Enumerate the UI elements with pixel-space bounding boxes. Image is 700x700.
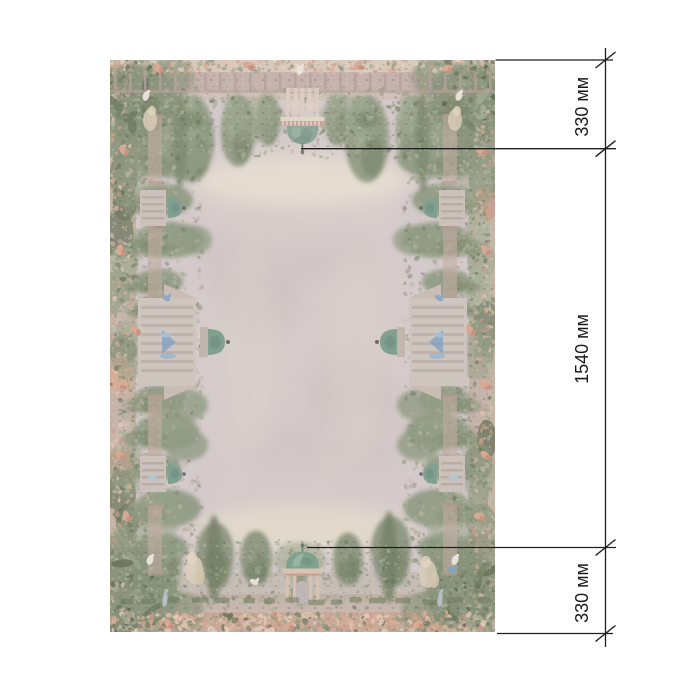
svg-text:330 мм: 330 мм [572,563,592,623]
svg-text:330 мм: 330 мм [572,77,592,137]
svg-text:1540 мм: 1540 мм [572,314,592,384]
